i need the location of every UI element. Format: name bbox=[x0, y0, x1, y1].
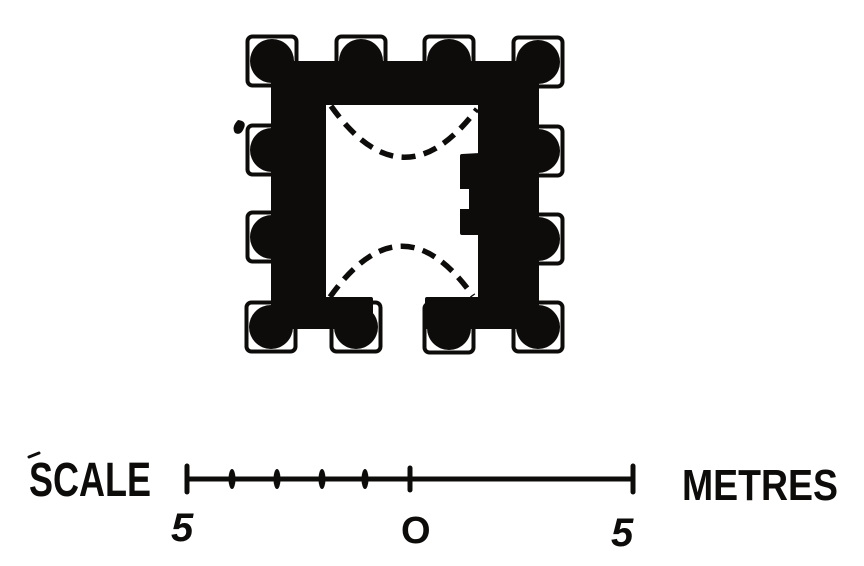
scale-bar-ticks bbox=[187, 466, 633, 492]
scanned-plan-figure: SCALE METRES 5 O 5 bbox=[0, 0, 864, 566]
scale-label: SCALE bbox=[29, 454, 151, 507]
tick-label-right-5: 5 bbox=[611, 511, 634, 555]
scale-bar-metre-tick bbox=[319, 469, 326, 489]
north-arch-dashed bbox=[331, 106, 477, 157]
scale-bar-metre-tick bbox=[274, 469, 281, 489]
scale-bar-metre-tick bbox=[362, 469, 369, 489]
ink-blemish bbox=[234, 120, 245, 134]
tower-wall bbox=[273, 63, 537, 327]
tick-label-zero: O bbox=[401, 510, 431, 552]
scale-bar: SCALE METRES 5 O 5 bbox=[29, 453, 838, 555]
tick-label-left-5: 5 bbox=[171, 506, 194, 550]
metres-unit-label: METRES bbox=[682, 461, 838, 510]
pilaster-gap-notch bbox=[459, 189, 469, 209]
building-plan bbox=[234, 37, 563, 353]
scale-bar-metre-tick bbox=[229, 469, 236, 489]
south-doorway-arch-dashed bbox=[330, 246, 473, 297]
